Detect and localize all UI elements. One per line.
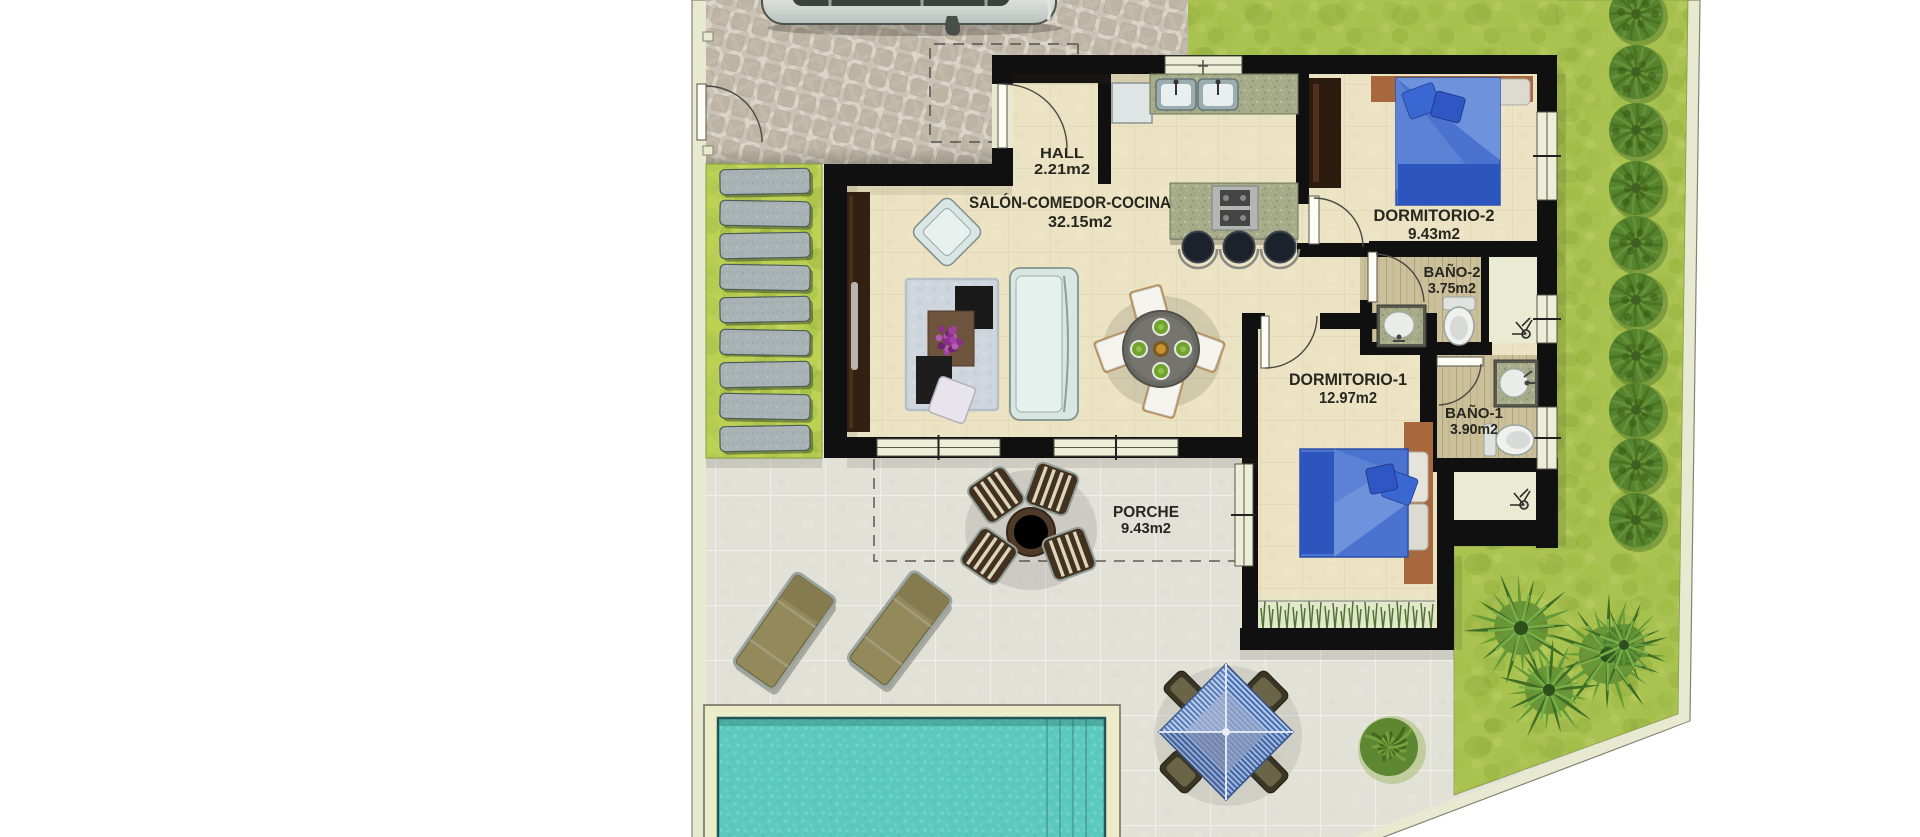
svg-text:HALL: HALL: [1040, 145, 1084, 162]
svg-text:3.90m2: 3.90m2: [1450, 422, 1498, 438]
svg-text:2.21m2: 2.21m2: [1034, 161, 1090, 178]
svg-text:BAÑO-2: BAÑO-2: [1424, 263, 1481, 281]
svg-text:3.75m2: 3.75m2: [1428, 281, 1476, 297]
svg-text:9.43m2: 9.43m2: [1408, 226, 1460, 243]
svg-text:32.15m2: 32.15m2: [1048, 214, 1112, 231]
svg-text:DORMITORIO-2: DORMITORIO-2: [1374, 206, 1495, 225]
svg-text:BAÑO-1: BAÑO-1: [1445, 404, 1503, 422]
svg-text:12.97m2: 12.97m2: [1319, 390, 1377, 407]
svg-text:PORCHE: PORCHE: [1113, 504, 1179, 521]
svg-text:DORMITORIO-1: DORMITORIO-1: [1289, 370, 1407, 389]
svg-text:9.43m2: 9.43m2: [1121, 520, 1171, 537]
svg-text:SALÓN-COMEDOR-COCINA: SALÓN-COMEDOR-COCINA: [969, 193, 1171, 212]
